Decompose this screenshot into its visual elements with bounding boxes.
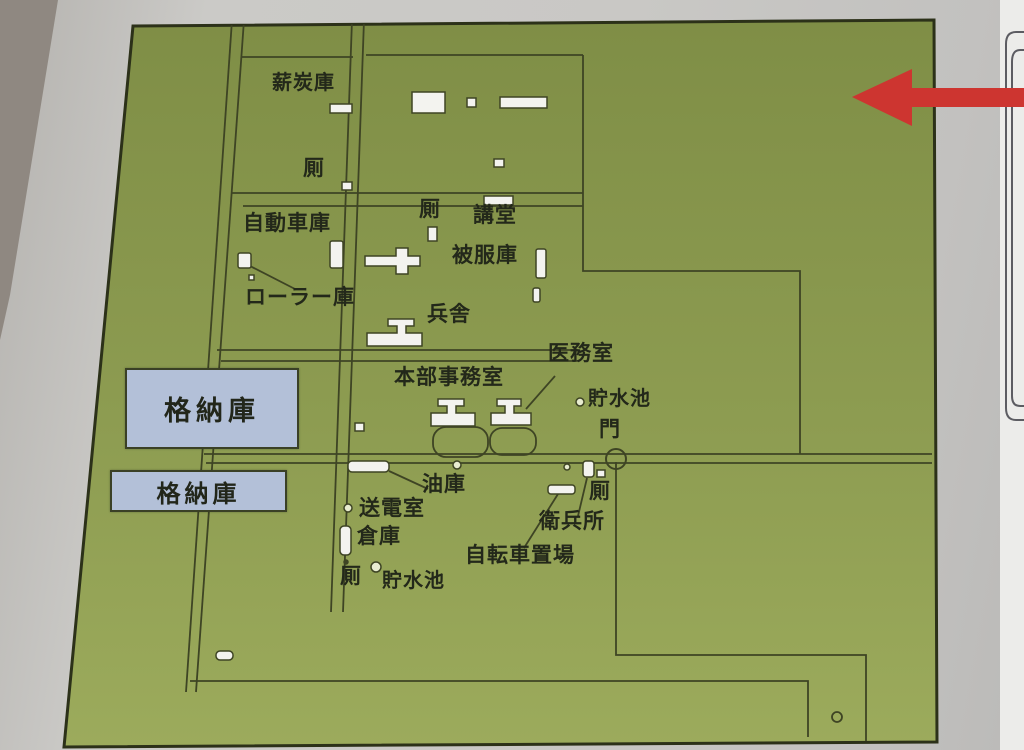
label-warehouse: 倉庫 (357, 526, 401, 547)
label-reservoir-south: 貯水池 (382, 571, 445, 591)
label-auditorium: 講堂 (473, 205, 517, 226)
building-toilet-nw (342, 182, 352, 190)
label-toilet-sw: 厠 (340, 566, 362, 587)
label-barracks: 兵舎 (427, 304, 471, 325)
building (533, 288, 540, 302)
label-fuel-storage: 薪炭庫 (272, 73, 335, 93)
reservoir-east-circle (576, 398, 584, 406)
building (500, 97, 547, 108)
building (536, 249, 546, 278)
building (467, 98, 476, 107)
building-fuel-storage (330, 104, 352, 113)
power-room-circle (344, 504, 352, 512)
label-guard-post: 衛兵所 (539, 511, 605, 532)
site-map-photo: 格納庫 格納庫 薪炭庫 厠 自動車庫 厠 講堂 被服庫 ローラー庫 兵舎 医務室… (0, 0, 1024, 750)
building-oil-storage (348, 461, 389, 472)
label-toilet-mid: 厠 (419, 199, 441, 220)
building-small (597, 470, 605, 477)
label-gate: 門 (599, 419, 621, 440)
toilet-sw-dot (344, 560, 348, 564)
photo-left-edge (0, 0, 58, 340)
building (494, 159, 504, 167)
label-power-room: 送電室 (359, 498, 425, 519)
label-reservoir-east: 貯水池 (588, 389, 651, 409)
label-toilet-nw: 厠 (303, 158, 325, 179)
small-circle (564, 464, 570, 470)
label-roller-storage: ローラー庫 (245, 287, 355, 308)
label-clothing-storage: 被服庫 (452, 245, 518, 266)
hangar-1-label: 格納庫 (164, 389, 260, 428)
small-circle (453, 461, 461, 469)
label-oil-storage: 油庫 (422, 474, 466, 495)
label-hq-office: 本部事務室 (394, 367, 504, 388)
building-toilet-mid (428, 227, 437, 241)
hangar-1: 格納庫 (125, 368, 299, 449)
reservoir-south-circle (371, 562, 381, 572)
building-roller-storage (238, 253, 251, 268)
hangar-2-label: 格納庫 (157, 474, 241, 509)
label-toilet-south: 厠 (589, 481, 611, 502)
building-guard-post (583, 461, 594, 477)
building-warehouse (340, 526, 351, 555)
building-small (249, 275, 254, 280)
building-small (355, 423, 364, 431)
building-garage (330, 241, 343, 268)
hangar-2: 格納庫 (110, 470, 287, 512)
building (412, 92, 445, 113)
label-medical-room: 医務室 (548, 343, 614, 364)
label-bicycle-parking: 自転車置場 (465, 545, 575, 566)
building-bicycle-parking (548, 485, 575, 494)
building-small (216, 651, 233, 660)
label-garage: 自動車庫 (243, 213, 331, 234)
